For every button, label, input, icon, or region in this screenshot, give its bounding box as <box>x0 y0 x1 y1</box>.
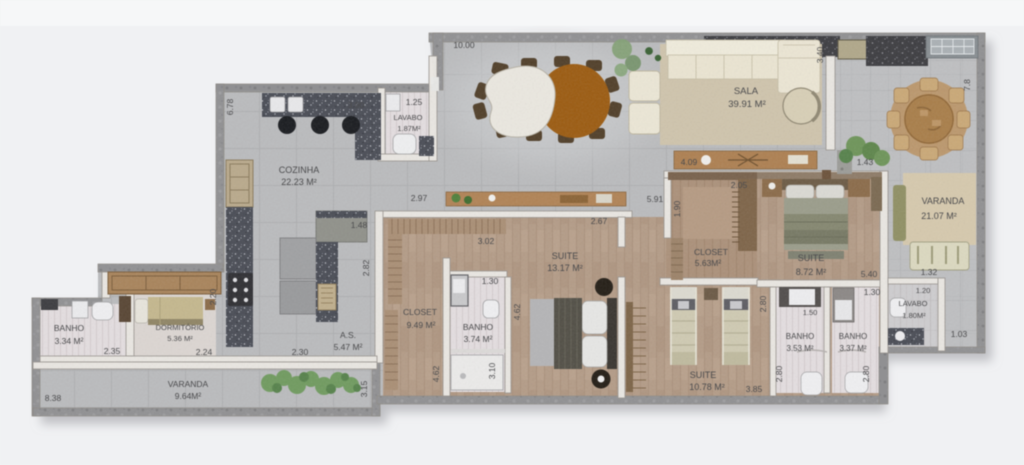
svg-text:VARANDA: VARANDA <box>922 196 965 206</box>
svg-text:2.05: 2.05 <box>731 180 748 190</box>
svg-text:LAVABO: LAVABO <box>394 113 423 122</box>
svg-text:1.50: 1.50 <box>803 308 818 317</box>
svg-text:3.02: 3.02 <box>478 236 495 246</box>
svg-text:COZINHA: COZINHA <box>279 165 320 175</box>
svg-text:22.23 M²: 22.23 M² <box>281 177 317 187</box>
svg-text:3.53 M²: 3.53 M² <box>786 344 813 353</box>
svg-text:10.78 M²: 10.78 M² <box>689 382 725 392</box>
svg-text:4.09: 4.09 <box>681 157 698 167</box>
svg-text:CLOSET: CLOSET <box>694 247 728 257</box>
svg-text:1.30: 1.30 <box>482 276 499 286</box>
svg-text:BANHO: BANHO <box>786 332 814 341</box>
svg-text:1.90: 1.90 <box>672 200 682 217</box>
svg-text:1.03: 1.03 <box>951 329 968 339</box>
svg-text:2.24: 2.24 <box>196 347 213 357</box>
svg-text:3.90: 3.90 <box>348 100 365 110</box>
svg-text:8.72 M²: 8.72 M² <box>796 267 827 277</box>
svg-text:2.97: 2.97 <box>411 193 428 203</box>
svg-text:5.36 M²: 5.36 M² <box>167 334 193 343</box>
svg-text:9.64M²: 9.64M² <box>175 391 202 401</box>
svg-text:CLOSET: CLOSET <box>403 307 437 317</box>
svg-text:10.00: 10.00 <box>453 40 475 50</box>
svg-text:2.80: 2.80 <box>861 365 871 382</box>
svg-text:2.80: 2.80 <box>758 295 768 312</box>
svg-text:A.S.: A.S. <box>340 330 356 340</box>
svg-text:2.30: 2.30 <box>292 347 309 357</box>
svg-text:1.87M²: 1.87M² <box>397 124 421 133</box>
svg-text:39.91 M²: 39.91 M² <box>728 99 766 110</box>
svg-text:5.47 M²: 5.47 M² <box>334 342 363 352</box>
svg-text:BANHO: BANHO <box>839 332 867 341</box>
svg-text:1.20: 1.20 <box>916 286 931 295</box>
svg-text:1.80M²: 1.80M² <box>902 311 926 320</box>
svg-text:3.34 M²: 3.34 M² <box>55 336 84 346</box>
svg-text:3.40: 3.40 <box>815 46 825 63</box>
svg-text:13.17 M²: 13.17 M² <box>547 263 583 273</box>
svg-text:2.35: 2.35 <box>104 346 121 356</box>
svg-text:2.80: 2.80 <box>774 365 784 382</box>
svg-text:1.25: 1.25 <box>406 97 423 107</box>
svg-text:2.67: 2.67 <box>591 216 608 226</box>
svg-text:VARANDA: VARANDA <box>168 379 209 389</box>
svg-text:3.74 M²: 3.74 M² <box>464 334 493 344</box>
svg-text:1.43: 1.43 <box>857 157 874 167</box>
svg-text:21.07 M²: 21.07 M² <box>921 211 957 221</box>
svg-text:5.91: 5.91 <box>647 194 664 204</box>
svg-text:LAVABO: LAVABO <box>899 299 928 308</box>
svg-text:3.10: 3.10 <box>487 362 497 379</box>
svg-text:BANHO: BANHO <box>463 322 494 332</box>
svg-text:SUITE: SUITE <box>690 370 717 380</box>
svg-text:1.48: 1.48 <box>351 220 368 230</box>
svg-text:1.30: 1.30 <box>864 287 881 297</box>
svg-text:3.15: 3.15 <box>359 380 369 397</box>
svg-text:DORMITÓRIO: DORMITÓRIO <box>156 323 205 332</box>
svg-text:1.32: 1.32 <box>921 267 938 277</box>
svg-text:4.62: 4.62 <box>512 303 522 320</box>
svg-text:9.49 M²: 9.49 M² <box>407 320 436 330</box>
svg-text:2.82: 2.82 <box>361 259 371 276</box>
svg-text:SUITE: SUITE <box>798 253 825 263</box>
svg-text:SUITE: SUITE <box>552 251 579 261</box>
svg-text:5.40: 5.40 <box>861 269 878 279</box>
svg-text:BANHO: BANHO <box>54 323 85 333</box>
svg-text:3.37 M²: 3.37 M² <box>839 344 866 353</box>
svg-text:6.78: 6.78 <box>225 98 235 115</box>
svg-text:2.20: 2.20 <box>208 288 218 305</box>
svg-text:3.85: 3.85 <box>746 384 763 394</box>
svg-text:7.8: 7.8 <box>962 79 972 91</box>
svg-text:5.63M²: 5.63M² <box>695 258 722 268</box>
svg-text:8.38: 8.38 <box>45 393 62 403</box>
svg-text:SALA: SALA <box>734 86 759 97</box>
svg-text:4.62: 4.62 <box>431 365 441 382</box>
